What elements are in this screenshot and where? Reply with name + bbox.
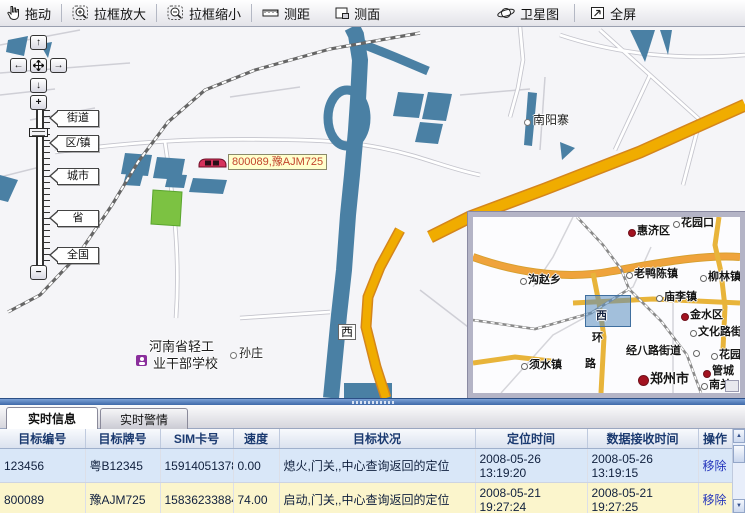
overview-inset-map[interactable]: 惠济区 花园口 老鸭陈镇 柳林镇 沟赵乡 庙李镇 金水区 文化路街 经八路街道 … [468, 212, 745, 398]
toolbar-separator [156, 4, 157, 22]
satellite-label: 卫星图 [520, 4, 559, 23]
cell-recv-time: 2008-05-21 19:27:25 [587, 483, 698, 513]
inset-label-huijiqu: 惠济区 [637, 222, 670, 238]
box-zoom-out-label: 拉框缩小 [189, 4, 241, 23]
cell-speed: 0.00 [233, 449, 279, 483]
inset-label-ring-road-1: 环 [592, 329, 603, 345]
pan-left-button[interactable]: ← [10, 58, 27, 73]
toolbar-separator [251, 4, 252, 22]
ruler-icon [262, 5, 280, 21]
col-header-plate: 目标牌号 [85, 429, 160, 449]
inset-label-xushui: 须水镇 [529, 356, 562, 372]
cell-plate: 粤B12345 [85, 449, 160, 483]
inset-label-laoyachen: 老鸭陈镇 [634, 265, 678, 281]
zoom-level-district[interactable]: 区/镇 [57, 135, 99, 152]
inset-label-liulin: 柳林镇 [708, 268, 741, 284]
inset-circle-dot [693, 350, 700, 357]
box-zoom-in-button[interactable]: 拉框放大 [67, 2, 151, 25]
cell-speed: 74.00 [233, 483, 279, 513]
zoom-level-city[interactable]: 城市 [57, 168, 99, 185]
place-label-sunzhuang: 孙庄 [239, 344, 263, 361]
place-label-school-line2: 业干部学校 [153, 353, 218, 372]
hand-icon [5, 5, 21, 21]
pan-center-button[interactable] [30, 58, 47, 73]
measure-distance-button[interactable]: 测距 [257, 2, 315, 25]
inset-label-jingbalu: 经八路街道 [626, 342, 681, 358]
zoom-level-nation[interactable]: 全国 [57, 247, 99, 264]
box-zoom-in-label: 拉框放大 [94, 4, 146, 23]
inset-label-zhengzhou: 郑州市 [650, 368, 689, 387]
col-header-sim: SIM卡号 [160, 429, 233, 449]
remove-link[interactable]: 移除 [703, 459, 727, 473]
scrollbar-thumb[interactable] [733, 445, 745, 463]
remove-link[interactable]: 移除 [703, 493, 727, 507]
tab-realtime-info[interactable]: 实时信息 [6, 407, 98, 429]
inset-red-dot [628, 229, 636, 237]
inset-circle-dot [711, 353, 718, 360]
inset-resize-grip[interactable] [725, 380, 739, 392]
inset-red-dot [681, 313, 689, 321]
zoom-in-button[interactable]: + [30, 95, 47, 110]
cell-target-id: 123456 [0, 449, 85, 483]
map-toolbar: 拖动 拉框放大 拉框缩小 测距 测面 [0, 0, 745, 27]
col-header-speed: 速度 [233, 429, 279, 449]
splitter-grip-dots [352, 401, 394, 404]
measure-area-button[interactable]: 测面 [329, 2, 385, 25]
inset-label-ring-road-2: 路 [585, 355, 596, 371]
drag-button[interactable]: 拖动 [0, 2, 56, 25]
inset-label-miaoli: 庙李镇 [664, 288, 697, 304]
cell-target-id: 800089 [0, 483, 85, 513]
scrollbar-up-arrow[interactable]: ▲ [733, 429, 745, 443]
inset-city-dot [638, 375, 649, 386]
place-label-nanyangzhai: 南阳寨 [533, 111, 569, 128]
zoom-level-street[interactable]: 街道 [57, 110, 99, 127]
cell-status: 启动,门关,,中心查询返回的定位 [279, 483, 475, 513]
inset-viewport-rectangle[interactable] [585, 295, 631, 327]
zoom-out-button[interactable]: − [30, 265, 47, 280]
inset-label-viewport-west: 西 [596, 307, 607, 323]
zoom-slider-handle[interactable] [29, 128, 48, 137]
measure-area-label: 测面 [354, 4, 380, 23]
map-canvas[interactable]: 南阳寨 孙庄 河南省轻工 业干部学校 西 800089,豫AJM725 ↑ ← … [0, 27, 745, 398]
cell-plate: 豫AJM725 [85, 483, 160, 513]
box-zoom-out-button[interactable]: 拉框缩小 [162, 2, 246, 25]
pan-right-button[interactable]: → [50, 58, 67, 73]
cell-sim: 15836233884 [160, 483, 233, 513]
table-row[interactable]: 800089 豫AJM725 15836233884 74.00 启动,门关,,… [0, 483, 732, 513]
satellite-globe-icon [496, 5, 516, 21]
pan-up-button[interactable]: ↑ [30, 35, 47, 50]
vehicle-car-icon[interactable] [198, 156, 227, 175]
realtime-info-table: 目标编号 目标牌号 SIM卡号 速度 目标状况 定位时间 数据接收时间 操作 1… [0, 429, 733, 513]
col-header-action: 操作 [698, 429, 732, 449]
gps-tracking-app: 拖动 拉框放大 拉框缩小 测距 测面 [0, 0, 745, 513]
scrollbar-down-arrow[interactable]: ▼ [733, 499, 745, 513]
inset-circle-dot [701, 383, 708, 390]
cell-fix-time: 2008-05-21 19:27:24 [475, 483, 587, 513]
inset-label-gouzhao: 沟赵乡 [528, 271, 561, 287]
inset-circle-dot [673, 221, 680, 228]
inset-circle-dot [626, 272, 633, 279]
inset-circle-dot [690, 330, 697, 337]
zoom-level-province[interactable]: 省 [57, 210, 99, 227]
horizontal-splitter[interactable] [0, 398, 745, 405]
inset-circle-dot [656, 295, 663, 302]
measure-distance-label: 测距 [284, 4, 310, 23]
cell-sim: 15914051378 [160, 449, 233, 483]
fullscreen-button[interactable]: 全屏 [585, 2, 641, 25]
col-header-target-id: 目标编号 [0, 429, 85, 449]
col-header-fix-time: 定位时间 [475, 429, 587, 449]
cell-status: 熄火,门关,,中心查询返回的定位 [279, 449, 475, 483]
pan-down-button[interactable]: ↓ [30, 78, 47, 93]
inset-circle-dot [700, 275, 707, 282]
toolbar-separator [61, 4, 62, 22]
school-icon [136, 355, 147, 366]
cell-action: 移除 [698, 449, 732, 483]
fullscreen-icon [590, 5, 606, 21]
tab-realtime-alerts[interactable]: 实时警情 [100, 408, 188, 430]
poi-marker-nanyangzhai [524, 119, 531, 126]
bottom-panel-tabbar: 实时信息 实时警情 [0, 405, 745, 429]
vehicle-label[interactable]: 800089,豫AJM725 [228, 154, 327, 170]
col-header-recv-time: 数据接收时间 [587, 429, 698, 449]
cell-fix-time: 2008-05-26 13:19:20 [475, 449, 587, 483]
table-scrollbar[interactable]: ▲ ▼ [732, 429, 745, 513]
inset-label-wenhualu: 文化路街 [698, 323, 742, 339]
inset-label-huayuan: 花园 [719, 346, 741, 362]
drag-button-label: 拖动 [25, 4, 51, 23]
poi-marker-sunzhuang [230, 352, 237, 359]
table-header-row: 目标编号 目标牌号 SIM卡号 速度 目标状况 定位时间 数据接收时间 操作 [0, 429, 732, 449]
col-header-status: 目标状况 [279, 429, 475, 449]
inset-label-huayuankou: 花园口 [681, 214, 714, 230]
area-icon [334, 5, 350, 21]
road-sign-west: 西 [338, 324, 356, 340]
cell-recv-time: 2008-05-26 13:19:15 [587, 449, 698, 483]
zoom-out-box-icon [167, 5, 185, 21]
toolbar-separator [574, 4, 575, 22]
satellite-button[interactable]: 卫星图 [491, 2, 564, 25]
inset-circle-dot [520, 278, 527, 285]
zoom-in-box-icon [72, 5, 90, 21]
table-row[interactable]: 123456 粤B12345 15914051378 0.00 熄火,门关,,中… [0, 449, 732, 483]
inset-circle-dot [521, 363, 528, 370]
fullscreen-label: 全屏 [610, 4, 636, 23]
inset-label-jinshui: 金水区 [690, 306, 723, 322]
cell-action: 移除 [698, 483, 732, 513]
